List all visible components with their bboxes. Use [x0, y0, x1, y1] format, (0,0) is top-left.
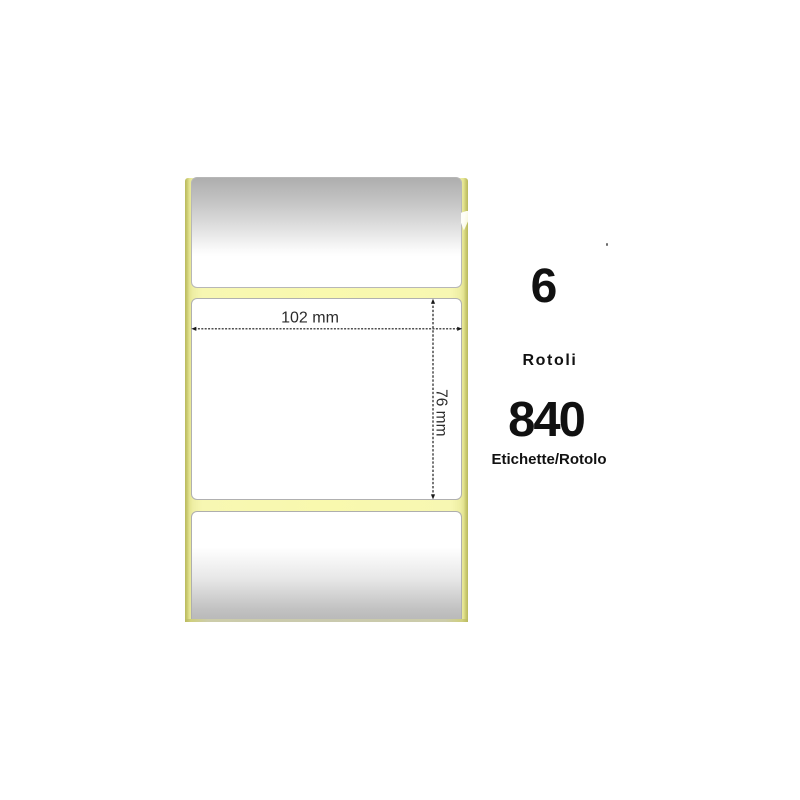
svg-text:102 mm: 102 mm	[281, 310, 339, 327]
